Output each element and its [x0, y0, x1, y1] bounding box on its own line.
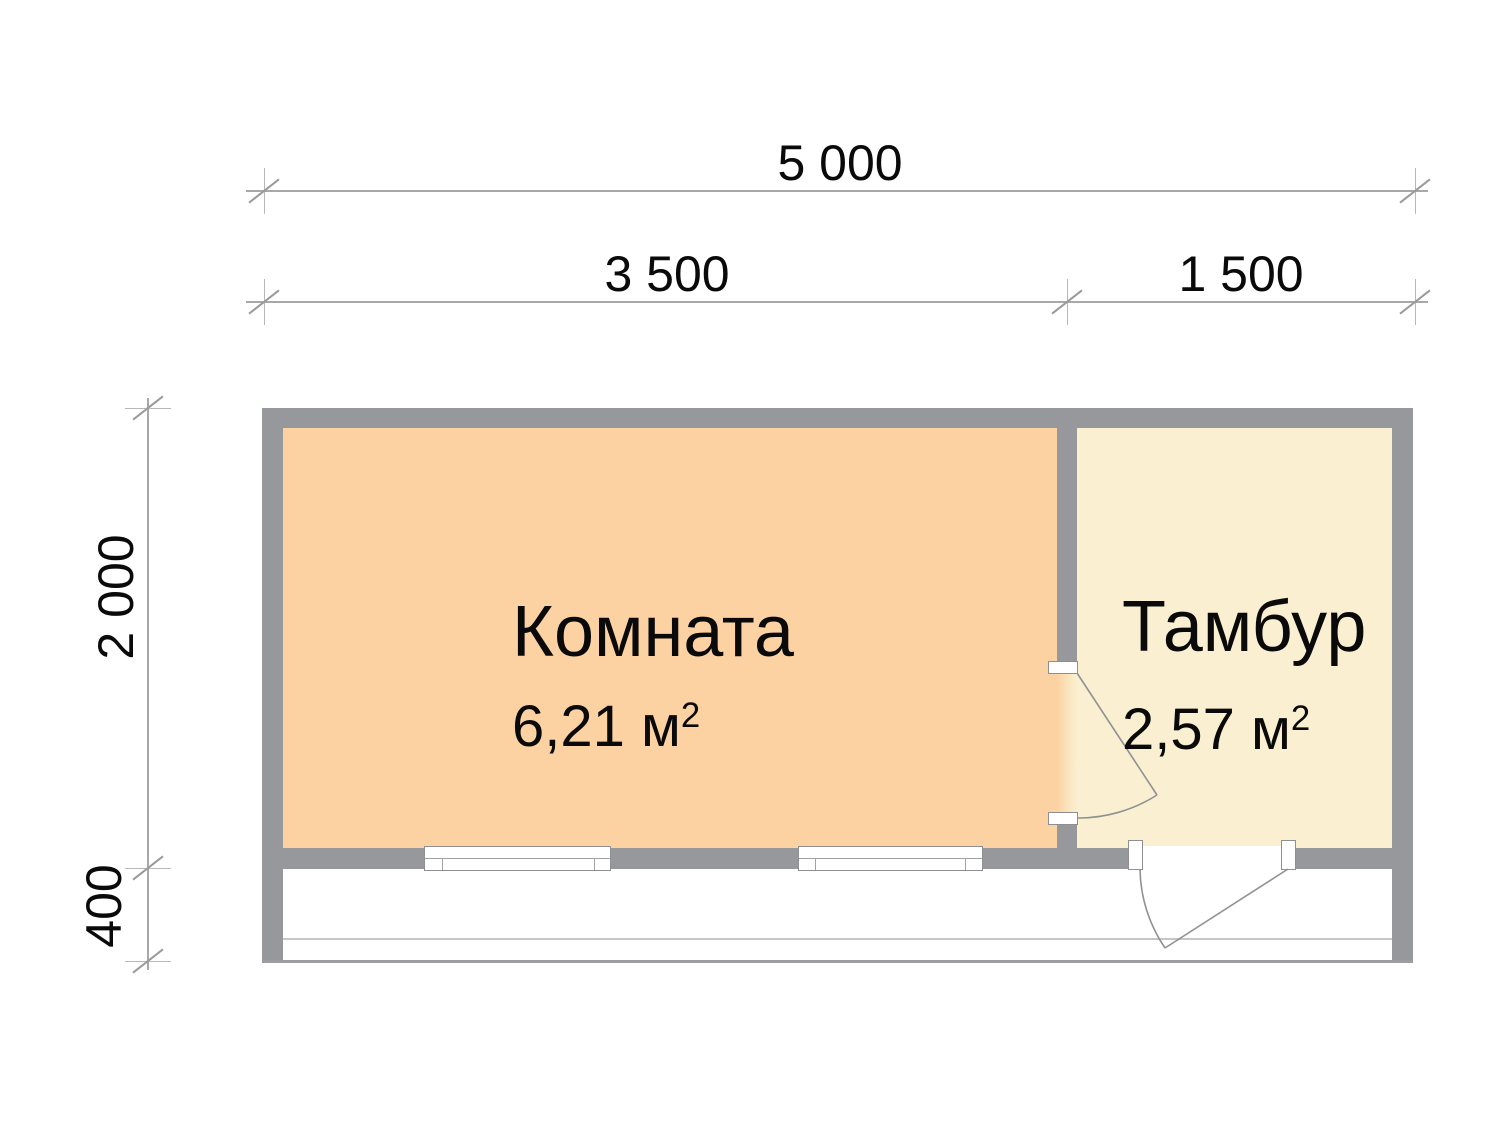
window-1-jamb-line — [442, 858, 443, 870]
vestibule-area: 2,57 м2 — [1122, 701, 1310, 759]
window-2-frame-line — [799, 858, 982, 859]
interior-door-jamb-top — [1048, 661, 1078, 674]
window-2-jamb-line — [815, 858, 816, 870]
vestibule-name: Тамбур — [1122, 591, 1366, 663]
wall-right — [1392, 408, 1413, 963]
main-room-name: Комната — [512, 596, 794, 668]
interior-door-jamb-bottom — [1048, 812, 1078, 825]
dimension-label-depth: 2 000 — [91, 534, 141, 659]
dimension-label-vestibule-width: 1 500 — [1178, 249, 1303, 299]
entrance-door-opening — [1142, 846, 1282, 870]
floor-plan-canvas: 5 000 3 500 1 500 2 000 400 — [0, 0, 1500, 1125]
dimension-label-total-width: 5 000 — [777, 138, 902, 188]
porch-step-line — [283, 938, 1392, 940]
window-1-frame-line — [425, 858, 610, 859]
entrance-door-jamb-right — [1281, 840, 1296, 870]
wall-left — [262, 408, 283, 963]
window-1 — [424, 846, 611, 871]
wall-top — [262, 408, 1413, 428]
dimension-label-main-room-width: 3 500 — [604, 249, 729, 299]
dimension-label-porch-depth: 400 — [79, 864, 129, 947]
interior-door-opening — [1057, 662, 1077, 824]
main-room-area-value: 6,21 м — [512, 694, 681, 759]
dimension-line-room-widths — [246, 301, 1428, 303]
porch-edge — [262, 960, 1413, 963]
dimension-line-depth — [147, 398, 149, 970]
main-room-area: 6,21 м2 — [512, 698, 700, 756]
window-2-jamb-line — [965, 858, 966, 870]
entrance-door-jamb-left — [1128, 840, 1143, 870]
entrance-door-swing-arc — [1140, 869, 1165, 948]
vestibule-area-superscript: 2 — [1291, 699, 1310, 738]
dimension-line-total-width — [246, 190, 1428, 192]
vestibule-area-value: 2,57 м — [1122, 697, 1291, 762]
entrance-door-leaf — [1165, 869, 1288, 948]
main-room-area-superscript: 2 — [681, 696, 700, 735]
window-2 — [798, 846, 983, 871]
window-1-jamb-line — [594, 858, 595, 870]
